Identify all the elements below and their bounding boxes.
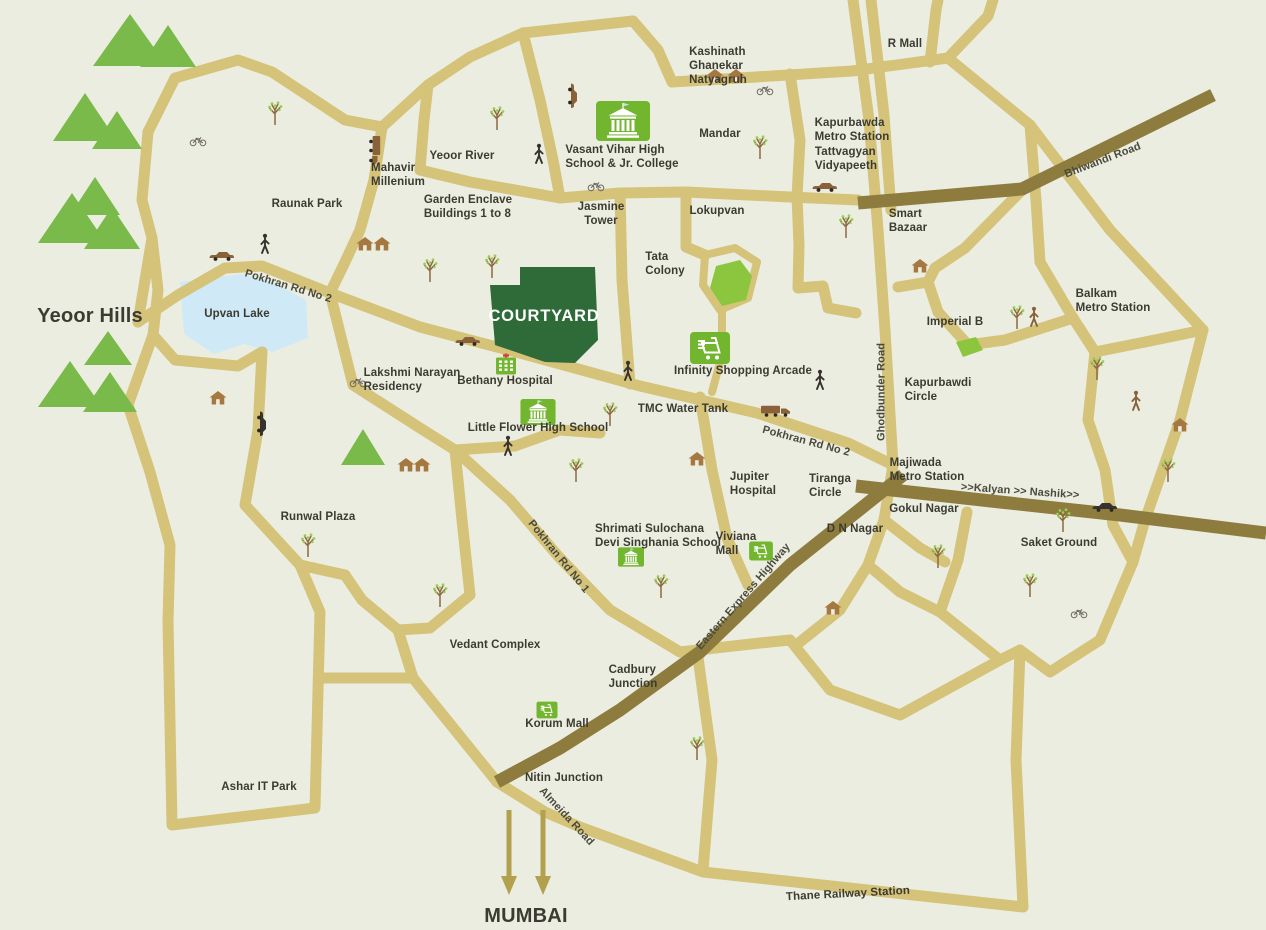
local-roads <box>128 0 1203 907</box>
pokhran-rd-1 <box>455 450 680 652</box>
thane-location-map: Yeoor HillsMUMBAICOURTYARDKashinath Ghan… <box>0 0 1266 930</box>
courtyard-site <box>490 267 598 363</box>
almeida-road-and-station-road <box>497 782 1023 907</box>
kalyan-nashik-road-path <box>856 486 1266 533</box>
eastern-express-highway-path <box>497 475 903 782</box>
map-base-graphics <box>0 0 1266 930</box>
